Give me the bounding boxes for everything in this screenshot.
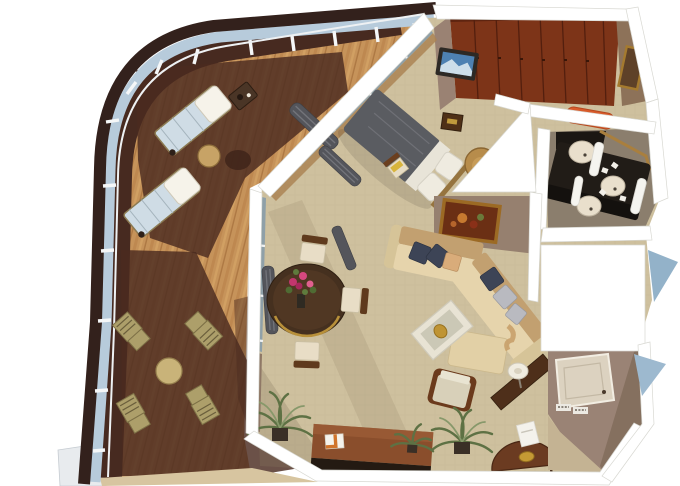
washbasin-1 (569, 141, 595, 163)
cabin-door (556, 354, 614, 408)
veranda-round-table (156, 358, 182, 384)
door-handle (602, 390, 606, 394)
glass-wedge-1 (648, 250, 678, 302)
open-book (325, 434, 344, 449)
guest-toilet-outline (541, 245, 645, 351)
nightstand (441, 113, 463, 132)
washbasin-3 (577, 196, 601, 216)
bath-bottom-wall (541, 226, 652, 242)
dining-table (267, 264, 347, 336)
dining-chair-2 (341, 286, 369, 314)
suite-floorplan (0, 0, 680, 486)
drinks-table (198, 145, 220, 167)
table-shadow (225, 150, 251, 170)
bedroom-top-wall (433, 5, 630, 21)
dining-chair-3 (293, 342, 320, 369)
floorplan-canvas (0, 0, 680, 486)
dining-chair-1 (299, 234, 328, 263)
